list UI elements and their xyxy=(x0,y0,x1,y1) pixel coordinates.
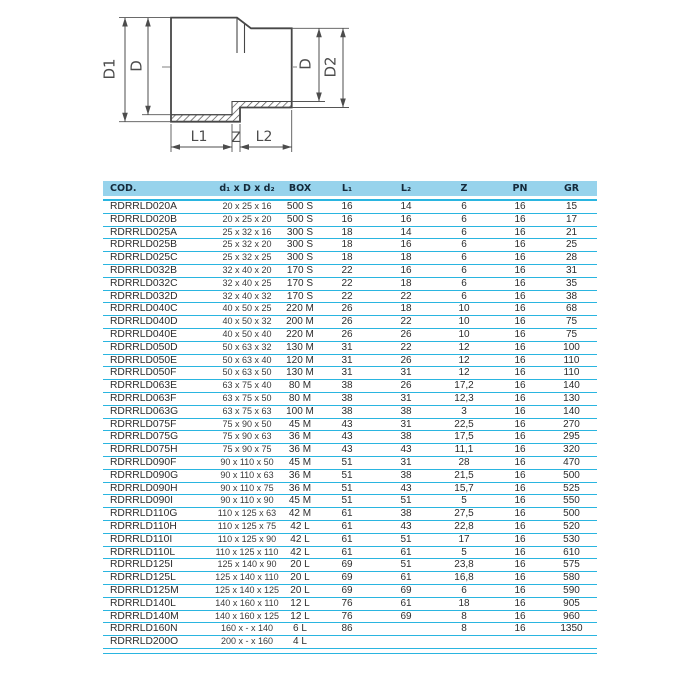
cell-cod: RDRRLD063G xyxy=(103,406,210,419)
cell-cod: RDRRLD032C xyxy=(103,278,210,291)
cell-z: 21,5 xyxy=(434,470,494,483)
cell-pn: 16 xyxy=(494,419,546,432)
cell-gr: 610 xyxy=(546,547,597,560)
cell-box: 220 M xyxy=(284,303,316,316)
cell-pn: 16 xyxy=(494,470,546,483)
cell-l2 xyxy=(378,636,434,649)
cell-gr: 100 xyxy=(546,342,597,355)
cell-l2: 31 xyxy=(378,419,434,432)
cell-l2: 43 xyxy=(378,444,434,457)
cell-z: 22,5 xyxy=(434,419,494,432)
cell-pn: 16 xyxy=(494,623,546,636)
product-table-container: COD. d₁ x D x d₂ BOX L₁ L₂ Z PN GR RDRRL… xyxy=(103,181,597,654)
cell-dimensions: 90 x 110 x 63 xyxy=(210,470,284,483)
cell-gr: 110 xyxy=(546,355,597,368)
table-row: RDRRLD040C 40 x 50 x 25 220 M 26 18 10 1… xyxy=(103,303,597,316)
cell-pn: 16 xyxy=(494,508,546,521)
cell-z: 8 xyxy=(434,611,494,624)
cell-l1: 61 xyxy=(316,521,378,534)
cell-l1: 51 xyxy=(316,483,378,496)
cell-gr: 575 xyxy=(546,559,597,572)
dim-label-z: Z xyxy=(231,130,241,146)
cell-l2: 51 xyxy=(378,534,434,547)
cell-z: 6 xyxy=(434,252,494,265)
cell-dimensions: 32 x 40 x 25 xyxy=(210,278,284,291)
cell-l1: 22 xyxy=(316,265,378,278)
cell-l2: 38 xyxy=(378,508,434,521)
cell-box: 120 M xyxy=(284,355,316,368)
cell-cod: RDRRLD020B xyxy=(103,214,210,227)
cell-box: 130 M xyxy=(284,342,316,355)
cell-gr: 530 xyxy=(546,534,597,547)
cell-l1: 61 xyxy=(316,508,378,521)
cell-dimensions: 90 x 110 x 75 xyxy=(210,483,284,496)
cell-cod: RDRRLD040E xyxy=(103,329,210,342)
cell-l1: 43 xyxy=(316,431,378,444)
cell-z: 6 xyxy=(434,585,494,598)
cell-gr: 35 xyxy=(546,278,597,291)
cell-l1: 38 xyxy=(316,380,378,393)
dim-label-d-right: D xyxy=(297,58,315,70)
col-header-cod: COD. xyxy=(103,181,210,199)
cell-l2: 38 xyxy=(378,470,434,483)
col-header-gr: GR xyxy=(546,181,597,199)
header-row: COD. d₁ x D x d₂ BOX L₁ L₂ Z PN GR xyxy=(103,181,597,199)
cell-box: 42 L xyxy=(284,534,316,547)
cell-cod: RDRRLD050D xyxy=(103,342,210,355)
cell-gr: 295 xyxy=(546,431,597,444)
cell-cod: RDRRLD140L xyxy=(103,598,210,611)
cell-box: 300 S xyxy=(284,239,316,252)
cell-l1: 26 xyxy=(316,329,378,342)
cell-z: 10 xyxy=(434,303,494,316)
table-row: RDRRLD032B 32 x 40 x 20 170 S 22 16 6 16… xyxy=(103,265,597,278)
cell-z: 12 xyxy=(434,342,494,355)
cell-box: 36 M xyxy=(284,483,316,496)
cell-z: 12,3 xyxy=(434,393,494,406)
cell-pn: 16 xyxy=(494,342,546,355)
cell-dimensions: 63 x 75 x 40 xyxy=(210,380,284,393)
cell-l1: 51 xyxy=(316,470,378,483)
cell-cod: RDRRLD110I xyxy=(103,534,210,547)
cell-z: 18 xyxy=(434,598,494,611)
cell-box: 6 L xyxy=(284,623,316,636)
cell-l1: 43 xyxy=(316,419,378,432)
cell-pn: 16 xyxy=(494,252,546,265)
cell-z: 6 xyxy=(434,227,494,240)
cell-gr: 15 xyxy=(546,199,597,214)
cell-dimensions: 110 x 125 x 90 xyxy=(210,534,284,547)
cell-l1: 26 xyxy=(316,316,378,329)
cell-l2 xyxy=(378,623,434,636)
cell-dimensions: 140 x 160 x 125 xyxy=(210,611,284,624)
cell-gr: 38 xyxy=(546,291,597,304)
cell-gr xyxy=(546,636,597,649)
cell-box: 20 L xyxy=(284,559,316,572)
cell-box: 45 M xyxy=(284,495,316,508)
cell-cod: RDRRLD032D xyxy=(103,291,210,304)
cell-pn: 16 xyxy=(494,199,546,214)
cell-z: 17 xyxy=(434,534,494,547)
dim-label-l1: L1 xyxy=(191,129,208,145)
cell-z: 23,8 xyxy=(434,559,494,572)
cell-l1: 76 xyxy=(316,598,378,611)
cell-z: 6 xyxy=(434,278,494,291)
cell-cod: RDRRLD040D xyxy=(103,316,210,329)
cell-pn xyxy=(494,636,546,649)
cell-gr: 470 xyxy=(546,457,597,470)
cell-gr: 140 xyxy=(546,380,597,393)
cell-gr: 905 xyxy=(546,598,597,611)
cell-gr: 75 xyxy=(546,316,597,329)
cell-pn: 16 xyxy=(494,444,546,457)
cell-gr: 130 xyxy=(546,393,597,406)
cell-cod: RDRRLD110G xyxy=(103,508,210,521)
cell-cod: RDRRLD160N xyxy=(103,623,210,636)
table-header: COD. d₁ x D x d₂ BOX L₁ L₂ Z PN GR xyxy=(103,181,597,199)
col-header-l1: L₁ xyxy=(316,181,378,199)
cell-l2: 14 xyxy=(378,199,434,214)
table-row: RDRRLD200O 200 x - x 160 4 L xyxy=(103,636,597,649)
cell-box: 36 M xyxy=(284,470,316,483)
cell-l1: 16 xyxy=(316,214,378,227)
cell-gr: 21 xyxy=(546,227,597,240)
cell-pn: 16 xyxy=(494,611,546,624)
cell-dimensions: 90 x 110 x 90 xyxy=(210,495,284,508)
table-row: RDRRLD125L 125 x 140 x 110 20 L 69 61 16… xyxy=(103,572,597,585)
cell-dimensions: 20 x 25 x 16 xyxy=(210,199,284,214)
table-row: RDRRLD090I 90 x 110 x 90 45 M 51 51 5 16… xyxy=(103,495,597,508)
cell-gr: 960 xyxy=(546,611,597,624)
cell-l2: 22 xyxy=(378,342,434,355)
cell-box: 300 S xyxy=(284,227,316,240)
cell-cod: RDRRLD050F xyxy=(103,367,210,380)
cell-gr: 140 xyxy=(546,406,597,419)
cell-dimensions: 125 x 140 x 110 xyxy=(210,572,284,585)
table-row: RDRRLD160N 160 x - x 140 6 L 86 8 16 135… xyxy=(103,623,597,636)
cell-dimensions: 50 x 63 x 32 xyxy=(210,342,284,355)
table-row: RDRRLD090H 90 x 110 x 75 36 M 51 43 15,7… xyxy=(103,483,597,496)
cell-dimensions: 110 x 125 x 110 xyxy=(210,547,284,560)
cell-dimensions: 125 x 140 x 125 xyxy=(210,585,284,598)
cell-box: 4 L xyxy=(284,636,316,649)
cell-gr: 500 xyxy=(546,470,597,483)
cell-box: 12 L xyxy=(284,611,316,624)
cell-z: 8 xyxy=(434,623,494,636)
cell-gr: 580 xyxy=(546,572,597,585)
catalog-page: { "theme": { "header-bg": "#97d3ec", "he… xyxy=(0,0,700,700)
table-row: RDRRLD050E 50 x 63 x 40 120 M 31 26 12 1… xyxy=(103,355,597,368)
cell-cod: RDRRLD090I xyxy=(103,495,210,508)
cell-box: 36 M xyxy=(284,444,316,457)
cell-pn: 16 xyxy=(494,483,546,496)
cell-pn: 16 xyxy=(494,367,546,380)
cell-pn: 16 xyxy=(494,521,546,534)
table-row: RDRRLD110H 110 x 125 x 75 42 L 61 43 22,… xyxy=(103,521,597,534)
cell-pn: 16 xyxy=(494,316,546,329)
cell-gr: 28 xyxy=(546,252,597,265)
cell-pn: 16 xyxy=(494,278,546,291)
cell-l2: 38 xyxy=(378,406,434,419)
table-row: RDRRLD090G 90 x 110 x 63 36 M 51 38 21,5… xyxy=(103,470,597,483)
cell-cod: RDRRLD063F xyxy=(103,393,210,406)
table-end-line xyxy=(103,649,597,654)
table-row: RDRRLD125M 125 x 140 x 125 20 L 69 69 6 … xyxy=(103,585,597,598)
cell-l1: 31 xyxy=(316,342,378,355)
cell-z: 3 xyxy=(434,406,494,419)
cell-l1: 69 xyxy=(316,572,378,585)
table-row: RDRRLD110G 110 x 125 x 63 42 M 61 38 27,… xyxy=(103,508,597,521)
cell-box: 500 S xyxy=(284,214,316,227)
cell-gr: 550 xyxy=(546,495,597,508)
cell-l2: 26 xyxy=(378,355,434,368)
cell-cod: RDRRLD025A xyxy=(103,227,210,240)
table-row: RDRRLD125I 125 x 140 x 90 20 L 69 51 23,… xyxy=(103,559,597,572)
dim-label-l2: L2 xyxy=(256,129,273,145)
cell-cod: RDRRLD050E xyxy=(103,355,210,368)
cell-cod: RDRRLD125I xyxy=(103,559,210,572)
cell-pn: 16 xyxy=(494,406,546,419)
cell-dimensions: 40 x 50 x 25 xyxy=(210,303,284,316)
cell-z: 6 xyxy=(434,214,494,227)
cell-box: 20 L xyxy=(284,572,316,585)
cell-l1: 18 xyxy=(316,239,378,252)
cell-dimensions: 32 x 40 x 32 xyxy=(210,291,284,304)
table-row: RDRRLD040E 40 x 50 x 40 220 M 26 26 10 1… xyxy=(103,329,597,342)
cell-cod: RDRRLD020A xyxy=(103,199,210,214)
table-row: RDRRLD075G 75 x 90 x 63 36 M 43 38 17,5 … xyxy=(103,431,597,444)
cell-l1: 31 xyxy=(316,367,378,380)
cell-z: 10 xyxy=(434,316,494,329)
cell-l1: 76 xyxy=(316,611,378,624)
cell-l2: 26 xyxy=(378,380,434,393)
cell-z: 28 xyxy=(434,457,494,470)
cell-dimensions: 200 x - x 160 xyxy=(210,636,284,649)
cell-l1: 16 xyxy=(316,199,378,214)
fitting-cross-section-diagram: D1 D D D2 L1 Z L2 xyxy=(0,0,400,175)
cell-l2: 51 xyxy=(378,559,434,572)
cell-z: 27,5 xyxy=(434,508,494,521)
table-row: RDRRLD020B 20 x 25 x 20 500 S 16 16 6 16… xyxy=(103,214,597,227)
cell-z: 12 xyxy=(434,367,494,380)
cell-gr: 110 xyxy=(546,367,597,380)
col-header-z: Z xyxy=(434,181,494,199)
cell-dimensions: 25 x 32 x 25 xyxy=(210,252,284,265)
cell-z: 6 xyxy=(434,239,494,252)
cell-box: 170 S xyxy=(284,265,316,278)
table-row: RDRRLD025B 25 x 32 x 20 300 S 18 16 6 16… xyxy=(103,239,597,252)
cell-box: 12 L xyxy=(284,598,316,611)
cell-box: 45 M xyxy=(284,419,316,432)
cell-box: 220 M xyxy=(284,329,316,342)
col-header-pn: PN xyxy=(494,181,546,199)
cell-pn: 16 xyxy=(494,431,546,444)
cell-pn: 16 xyxy=(494,559,546,572)
cell-dimensions: 160 x - x 140 xyxy=(210,623,284,636)
cell-l1: 38 xyxy=(316,393,378,406)
table-row: RDRRLD025A 25 x 32 x 16 300 S 18 14 6 16… xyxy=(103,227,597,240)
cell-pn: 16 xyxy=(494,291,546,304)
table-row: RDRRLD063F 63 x 75 x 50 80 M 38 31 12,3 … xyxy=(103,393,597,406)
table-row: RDRRLD075F 75 x 90 x 50 45 M 43 31 22,5 … xyxy=(103,419,597,432)
cell-box: 80 M xyxy=(284,393,316,406)
cell-l2: 22 xyxy=(378,316,434,329)
cell-l2: 43 xyxy=(378,521,434,534)
cell-box: 42 L xyxy=(284,521,316,534)
table-row: RDRRLD110I 110 x 125 x 90 42 L 61 51 17 … xyxy=(103,534,597,547)
cell-cod: RDRRLD090F xyxy=(103,457,210,470)
cell-gr: 25 xyxy=(546,239,597,252)
cell-dimensions: 110 x 125 x 63 xyxy=(210,508,284,521)
cell-z: 10 xyxy=(434,329,494,342)
cell-l1 xyxy=(316,636,378,649)
cell-z xyxy=(434,636,494,649)
cell-dimensions: 50 x 63 x 50 xyxy=(210,367,284,380)
cell-z: 5 xyxy=(434,547,494,560)
cell-gr: 75 xyxy=(546,329,597,342)
cell-l1: 18 xyxy=(316,252,378,265)
table-row: RDRRLD063E 63 x 75 x 40 80 M 38 26 17,2 … xyxy=(103,380,597,393)
cell-l1: 61 xyxy=(316,534,378,547)
cell-l2: 31 xyxy=(378,457,434,470)
cell-dimensions: 25 x 32 x 20 xyxy=(210,239,284,252)
cell-box: 36 M xyxy=(284,431,316,444)
cell-z: 12 xyxy=(434,355,494,368)
cell-l1: 69 xyxy=(316,559,378,572)
cell-gr: 68 xyxy=(546,303,597,316)
cell-z: 6 xyxy=(434,291,494,304)
cell-pn: 16 xyxy=(494,380,546,393)
cell-l1: 26 xyxy=(316,303,378,316)
cell-dimensions: 75 x 90 x 50 xyxy=(210,419,284,432)
cell-z: 6 xyxy=(434,199,494,214)
cell-l1: 22 xyxy=(316,278,378,291)
table-row: RDRRLD075H 75 x 90 x 75 36 M 43 43 11,1 … xyxy=(103,444,597,457)
cell-box: 20 L xyxy=(284,585,316,598)
cell-gr: 320 xyxy=(546,444,597,457)
cell-z: 5 xyxy=(434,495,494,508)
cell-l1: 51 xyxy=(316,457,378,470)
cell-cod: RDRRLD075G xyxy=(103,431,210,444)
cell-cod: RDRRLD025B xyxy=(103,239,210,252)
table-row: RDRRLD110L 110 x 125 x 110 42 L 61 61 5 … xyxy=(103,547,597,560)
dim-label-d2: D2 xyxy=(322,56,340,77)
cell-gr: 31 xyxy=(546,265,597,278)
cell-dimensions: 75 x 90 x 75 xyxy=(210,444,284,457)
table-row: RDRRLD040D 40 x 50 x 32 200 M 26 22 10 1… xyxy=(103,316,597,329)
cell-z: 17,5 xyxy=(434,431,494,444)
cell-box: 200 M xyxy=(284,316,316,329)
cell-cod: RDRRLD063E xyxy=(103,380,210,393)
table-row: RDRRLD025C 25 x 32 x 25 300 S 18 18 6 16… xyxy=(103,252,597,265)
cell-box: 100 M xyxy=(284,406,316,419)
cell-cod: RDRRLD075F xyxy=(103,419,210,432)
table-row: RDRRLD050F 50 x 63 x 50 130 M 31 31 12 1… xyxy=(103,367,597,380)
cell-dimensions: 32 x 40 x 20 xyxy=(210,265,284,278)
cell-pn: 16 xyxy=(494,598,546,611)
cell-l2: 61 xyxy=(378,572,434,585)
cell-z: 17,2 xyxy=(434,380,494,393)
cell-pn: 16 xyxy=(494,214,546,227)
col-header-box: BOX xyxy=(284,181,316,199)
cell-l1: 18 xyxy=(316,227,378,240)
cell-pn: 16 xyxy=(494,329,546,342)
product-table: COD. d₁ x D x d₂ BOX L₁ L₂ Z PN GR RDRRL… xyxy=(103,181,597,654)
cell-z: 22,8 xyxy=(434,521,494,534)
cell-cod: RDRRLD090G xyxy=(103,470,210,483)
cell-gr: 590 xyxy=(546,585,597,598)
cell-pn: 16 xyxy=(494,227,546,240)
cell-gr: 520 xyxy=(546,521,597,534)
cell-dimensions: 40 x 50 x 40 xyxy=(210,329,284,342)
cell-l2: 26 xyxy=(378,329,434,342)
cell-l1: 43 xyxy=(316,444,378,457)
cell-cod: RDRRLD110H xyxy=(103,521,210,534)
cell-pn: 16 xyxy=(494,457,546,470)
cell-z: 16,8 xyxy=(434,572,494,585)
cell-box: 300 S xyxy=(284,252,316,265)
cell-l2: 38 xyxy=(378,431,434,444)
cell-cod: RDRRLD040C xyxy=(103,303,210,316)
cell-l1: 61 xyxy=(316,547,378,560)
cell-l2: 16 xyxy=(378,239,434,252)
cell-cod: RDRRLD032B xyxy=(103,265,210,278)
cell-cod: RDRRLD125M xyxy=(103,585,210,598)
cell-dimensions: 20 x 25 x 20 xyxy=(210,214,284,227)
col-header-l2: L₂ xyxy=(378,181,434,199)
cell-pn: 16 xyxy=(494,585,546,598)
cell-pn: 16 xyxy=(494,265,546,278)
cell-pn: 16 xyxy=(494,355,546,368)
cell-cod: RDRRLD025C xyxy=(103,252,210,265)
cell-dimensions: 125 x 140 x 90 xyxy=(210,559,284,572)
table-row: RDRRLD020A 20 x 25 x 16 500 S 16 14 6 16… xyxy=(103,199,597,214)
cell-l2: 51 xyxy=(378,495,434,508)
cell-l2: 18 xyxy=(378,303,434,316)
cell-l2: 69 xyxy=(378,611,434,624)
cell-l1: 38 xyxy=(316,406,378,419)
cell-l2: 22 xyxy=(378,291,434,304)
cell-l1: 86 xyxy=(316,623,378,636)
cell-z: 11,1 xyxy=(434,444,494,457)
cell-box: 42 L xyxy=(284,547,316,560)
cell-l2: 61 xyxy=(378,547,434,560)
cell-l2: 31 xyxy=(378,367,434,380)
cell-dimensions: 63 x 75 x 50 xyxy=(210,393,284,406)
cell-gr: 1350 xyxy=(546,623,597,636)
cell-pn: 16 xyxy=(494,303,546,316)
table-row: RDRRLD032C 32 x 40 x 25 170 S 22 18 6 16… xyxy=(103,278,597,291)
cell-l2: 16 xyxy=(378,214,434,227)
cell-l2: 18 xyxy=(378,252,434,265)
cell-cod: RDRRLD075H xyxy=(103,444,210,457)
table-footer xyxy=(103,649,597,654)
cell-pn: 16 xyxy=(494,239,546,252)
cell-l1: 51 xyxy=(316,495,378,508)
cell-pn: 16 xyxy=(494,393,546,406)
cell-cod: RDRRLD110L xyxy=(103,547,210,560)
cell-box: 42 M xyxy=(284,508,316,521)
table-row: RDRRLD032D 32 x 40 x 32 170 S 22 22 6 16… xyxy=(103,291,597,304)
cell-dimensions: 40 x 50 x 32 xyxy=(210,316,284,329)
cell-cod: RDRRLD090H xyxy=(103,483,210,496)
cell-gr: 270 xyxy=(546,419,597,432)
cell-box: 170 S xyxy=(284,278,316,291)
cell-gr: 17 xyxy=(546,214,597,227)
cell-dimensions: 140 x 160 x 110 xyxy=(210,598,284,611)
cell-z: 15,7 xyxy=(434,483,494,496)
cell-gr: 525 xyxy=(546,483,597,496)
